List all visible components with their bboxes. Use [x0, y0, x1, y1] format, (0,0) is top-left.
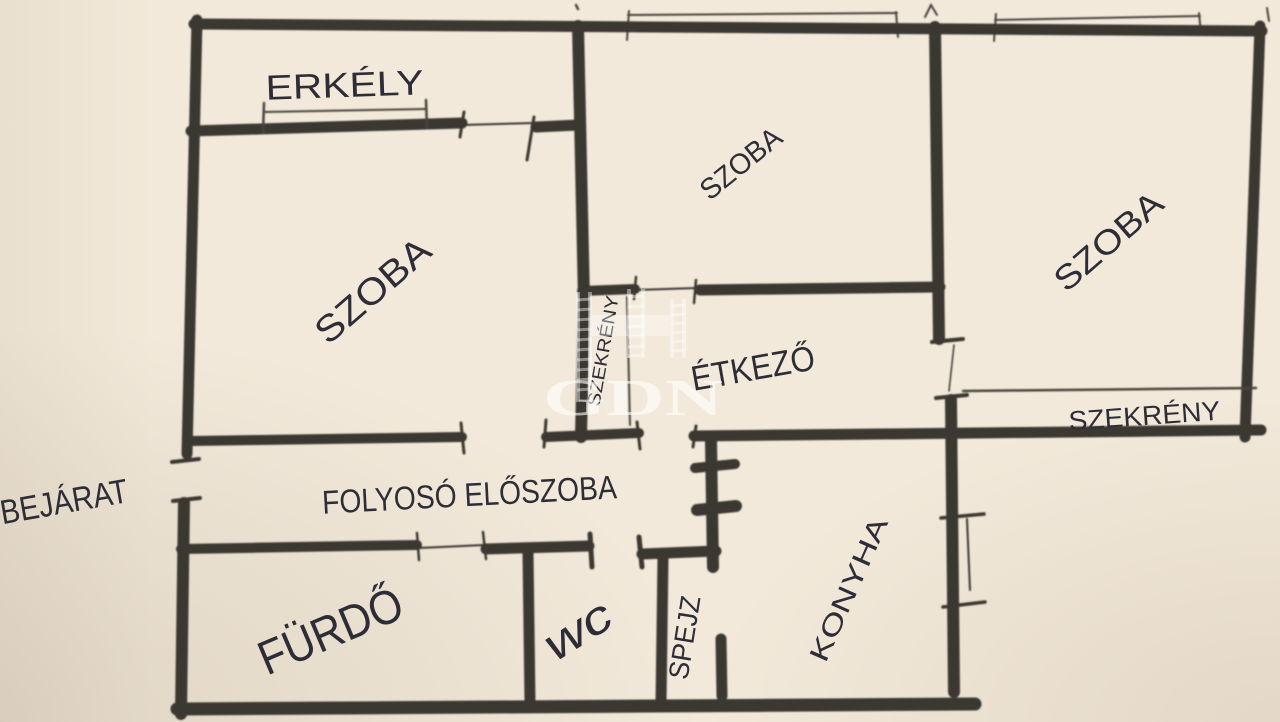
svg-text:ERKÉLY: ERKÉLY [265, 63, 424, 107]
svg-text:GDN: GDN [543, 370, 723, 427]
